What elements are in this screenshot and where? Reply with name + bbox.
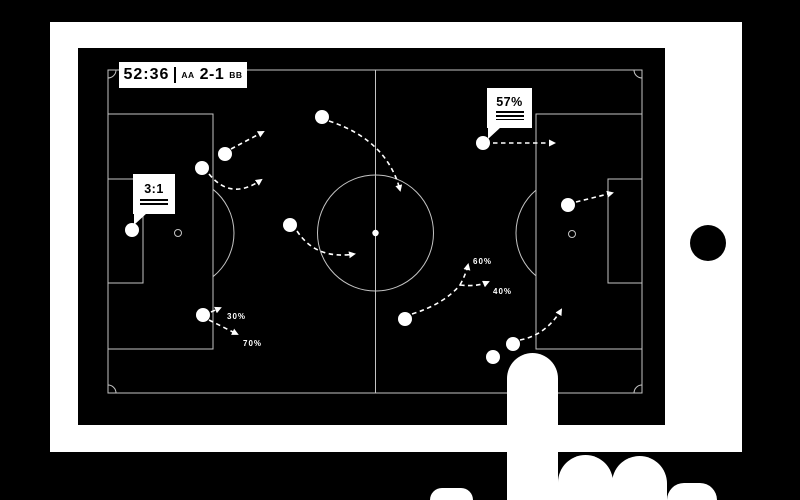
knuckle (558, 455, 613, 500)
movement-arrow (209, 174, 261, 189)
player-dot[interactable] (506, 337, 520, 351)
player-dot[interactable] (125, 223, 139, 237)
match-time: 52:36 (123, 66, 169, 84)
corner-arc-bottom-right (634, 385, 642, 393)
tooltip-text-lines (140, 199, 168, 205)
right-goal-box (608, 179, 642, 283)
index-finger (507, 353, 558, 500)
movement-arrow (460, 282, 488, 286)
player-dot[interactable] (315, 110, 329, 124)
center-spot (372, 230, 378, 236)
players (125, 110, 575, 364)
player-dot[interactable] (486, 350, 500, 364)
right-penalty-arc (516, 190, 536, 276)
tooltip-tail (488, 127, 501, 139)
away-team-label: BB (229, 70, 242, 80)
home-button[interactable] (690, 225, 726, 261)
possession-value: 57% (496, 96, 523, 109)
pass-probability-labels: 30%70%60%40% (227, 257, 512, 348)
movement-arrow (412, 285, 460, 314)
movement-arrows (209, 121, 612, 340)
tactics-screen: 30%70%60%40% 52:36 AA 2-1 BB 57% 3:1 (78, 48, 665, 425)
movement-arrow (231, 132, 263, 149)
movement-arrow (576, 193, 612, 202)
ratio-tooltip: 3:1 (133, 174, 175, 214)
player-dot[interactable] (218, 147, 232, 161)
player-dot[interactable] (195, 161, 209, 175)
possession-tooltip: 57% (487, 88, 532, 128)
corner-arc-top-right (634, 70, 642, 78)
scoreboard-divider-bar (174, 67, 176, 83)
movement-arrow (329, 121, 400, 190)
player-dot[interactable] (398, 312, 412, 326)
movement-arrow (297, 231, 354, 255)
scoreboard: 52:36 AA 2-1 BB (119, 62, 247, 88)
knuckle (612, 456, 667, 500)
pass-probability-label: 60% (473, 257, 492, 266)
ratio-value: 3:1 (144, 183, 164, 196)
illustration-stage: 30%70%60%40% 52:36 AA 2-1 BB 57% 3:1 (0, 0, 800, 500)
pitch-diagram: 30%70%60%40% (78, 48, 665, 425)
movement-arrow (520, 310, 561, 340)
pass-probability-label: 30% (227, 312, 246, 321)
match-score: 2-1 (200, 66, 225, 84)
tooltip-text-lines (496, 111, 524, 120)
pass-probability-label: 40% (493, 287, 512, 296)
penalty-spot (569, 231, 576, 238)
home-team-label: AA (181, 70, 194, 80)
movement-arrow (460, 265, 468, 285)
corner-arc-bottom-left (108, 385, 116, 393)
tablet-device: 30%70%60%40% 52:36 AA 2-1 BB 57% 3:1 (50, 22, 742, 452)
movement-arrow (211, 308, 220, 312)
right-penalty-box (536, 114, 642, 349)
player-dot[interactable] (283, 218, 297, 232)
penalty-spot (175, 230, 182, 237)
thumb (430, 488, 473, 500)
corner-arc-top-left (108, 70, 116, 78)
pass-probability-label: 70% (243, 339, 262, 348)
knuckle (667, 483, 717, 500)
left-penalty-arc (213, 189, 234, 276)
tooltip-tail (134, 213, 147, 225)
player-dot[interactable] (196, 308, 210, 322)
player-dot[interactable] (561, 198, 575, 212)
